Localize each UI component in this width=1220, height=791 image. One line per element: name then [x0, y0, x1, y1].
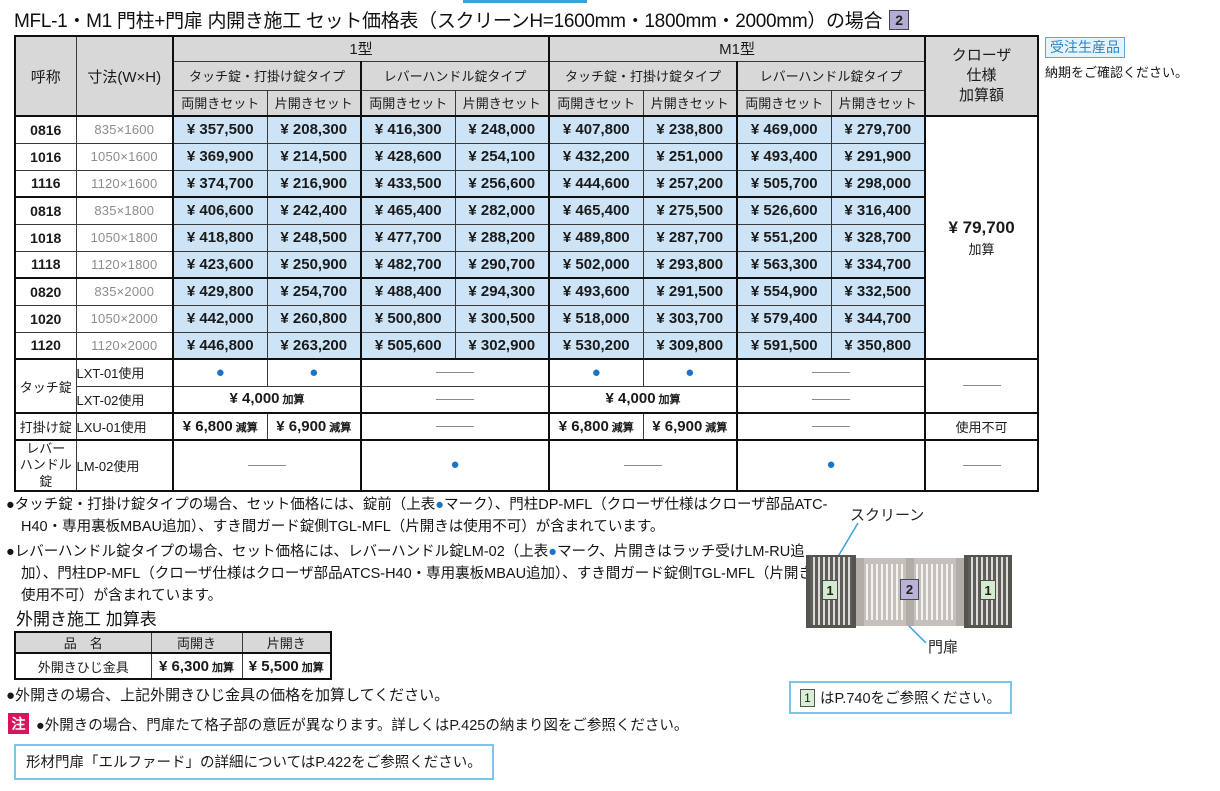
reference-info-box: 形材門扉「エルファード」の詳細についてはP.422をご参照ください。 [14, 744, 494, 780]
screen-label: スクリーン [850, 504, 924, 525]
not-applicable-cell [549, 440, 737, 491]
discount-suffix: 減算 [612, 422, 634, 434]
price-cell: ¥ 505,700 [737, 170, 831, 197]
price-cell: ¥ 288,200 [455, 224, 549, 251]
price-cell: ¥ 418,800 [173, 224, 267, 251]
gate-door-panel [866, 564, 904, 620]
surcharge-price: ¥ 6,300 [159, 658, 209, 675]
price-cell: ¥ 369,900 [173, 143, 267, 170]
size-cell: 1120×2000 [76, 332, 173, 359]
outward-data-row: 外開きひじ金具 ¥ 6,300加算 ¥ 5,500加算 [15, 653, 331, 679]
na-dash [436, 426, 474, 427]
price-cell: ¥ 551,200 [737, 224, 831, 251]
outward-table-title: 外開き施工 加算表 [16, 605, 157, 630]
price-cell: ¥ 465,400 [361, 197, 455, 224]
price-cell: ¥ 250,900 [267, 251, 361, 278]
not-applicable-cell [737, 386, 925, 413]
note-bullet: ● [36, 718, 45, 734]
price-cell: ¥ 256,600 [455, 170, 549, 197]
price-cell: ¥ 214,500 [267, 143, 361, 170]
price-cell: ¥ 469,000 [737, 116, 831, 143]
size-cell: 1050×1800 [76, 224, 173, 251]
discount-cell: ¥ 6,800減算 [549, 413, 643, 440]
price-cell: ¥ 350,800 [831, 332, 925, 359]
price-cell: ¥ 238,800 [643, 116, 737, 143]
lock-category-lever: レバー ハンドル錠 [15, 440, 76, 491]
na-dash [812, 372, 850, 373]
ref-number-badge: 1 [800, 689, 815, 707]
table-row: 1016 1050×1600 ¥ 369,900 ¥ 214,500 ¥ 428… [15, 143, 1038, 170]
size-cell: 1120×1600 [76, 170, 173, 197]
model-cell: 1120 [15, 332, 76, 359]
price-cell: ¥ 406,600 [173, 197, 267, 224]
price-cell: ¥ 477,700 [361, 224, 455, 251]
footnotes: ●タッチ錠・打掛け錠タイプの場合、セット価格には、錠前（上表●マーク）、門柱DP… [6, 494, 828, 610]
price-cell: ¥ 290,700 [455, 251, 549, 278]
price-cell: ¥ 208,300 [267, 116, 361, 143]
price-cell: ¥ 433,500 [361, 170, 455, 197]
note-bullet: ● [6, 687, 15, 704]
applicable-dot: ● [216, 364, 225, 381]
col-header-product: 品 名 [15, 632, 151, 653]
outward-surcharge-table: 品 名 両開き 片開き 外開きひじ金具 ¥ 6,300加算 ¥ 5,500加算 [14, 631, 332, 680]
col-header-double: 両開きセット [361, 90, 455, 116]
table-row: 1118 1120×1800 ¥ 423,600 ¥ 250,900 ¥ 482… [15, 251, 1038, 278]
price-cell: ¥ 300,500 [455, 305, 549, 332]
surcharge-suffix: 加算 [659, 394, 681, 406]
surcharge-cell: ¥ 4,000加算 [173, 386, 361, 413]
price-table: 呼称 寸法(W×H) 1型 M1型 クローザ 仕様 加算額 タッチ錠・打掛け錠タ… [14, 35, 1039, 492]
note-segment: 外開きの場合、門扉たて格子部の意匠が異なります。詳しくはP.425の納まり図をご… [45, 718, 689, 734]
price-cell: ¥ 357,500 [173, 116, 267, 143]
col-header-touch-m1: タッチ錠・打掛け錠タイプ [549, 61, 737, 90]
note-lever: ●レバーハンドル錠タイプの場合、セット価格には、レバーハンドル錠LM-02（上表… [6, 541, 828, 607]
na-dash [812, 399, 850, 400]
price-cell: ¥ 446,800 [173, 332, 267, 359]
size-cell: 835×1800 [76, 197, 173, 224]
lock-row-lxt01: タッチ錠 LXT-01使用 ● ● ● ● [15, 359, 1038, 386]
price-cell: ¥ 429,800 [173, 278, 267, 305]
lock-label: LXU-01使用 [76, 413, 173, 440]
table-row: 0820 835×2000 ¥ 429,800 ¥ 254,700 ¥ 488,… [15, 278, 1038, 305]
surcharge-price: ¥ 4,000 [229, 390, 279, 407]
table-row: 1020 1050×2000 ¥ 442,000 ¥ 260,800 ¥ 500… [15, 305, 1038, 332]
discount-suffix: 減算 [705, 422, 727, 434]
col-header-closer: クローザ 仕様 加算額 [925, 36, 1038, 116]
closer-price: ¥ 79,700 [926, 218, 1037, 238]
applicable-dot: ● [685, 364, 694, 381]
outward-note: ●外開きの場合、上記外開きひじ金具の価格を加算してください。 [6, 684, 449, 705]
gate-number-badge: 2 [900, 579, 919, 600]
screen-number-badge: 1 [822, 580, 838, 600]
price-cell: ¥ 316,400 [831, 197, 925, 224]
closer-surcharge-cell: ¥ 79,700 加算 [925, 116, 1038, 359]
col-header-double: 両開きセット [549, 90, 643, 116]
lock-row-lxu01: 打掛け錠 LXU-01使用 ¥ 6,800減算 ¥ 6,900減算 ¥ 6,80… [15, 413, 1038, 440]
discount-price: ¥ 6,800 [559, 418, 609, 435]
price-cell: ¥ 432,200 [549, 143, 643, 170]
model-cell: 0818 [15, 197, 76, 224]
applicable-cell: ● [173, 359, 267, 386]
model-cell: 1020 [15, 305, 76, 332]
note-segment: レバーハンドル錠タイプの場合、セット価格には、レバーハンドル錠LM-02（上表 [15, 544, 549, 560]
price-cell: ¥ 526,600 [737, 197, 831, 224]
price-cell: ¥ 444,600 [549, 170, 643, 197]
na-dash [436, 399, 474, 400]
caution-text: ●外開きの場合、門扉たて格子部の意匠が異なります。詳しくはP.425の納まり図を… [36, 713, 688, 735]
price-cell: ¥ 332,500 [831, 278, 925, 305]
header-row-groups: 呼称 寸法(W×H) 1型 M1型 クローザ 仕様 加算額 [15, 36, 1038, 61]
gate-post [856, 558, 864, 626]
note-bullet: ● [6, 497, 15, 513]
applicable-dot: ● [450, 456, 459, 473]
na-dash [812, 426, 850, 427]
note-bullet: ● [6, 544, 15, 560]
col-header-single: 片開きセット [643, 90, 737, 116]
price-cell: ¥ 563,300 [737, 251, 831, 278]
price-cell: ¥ 303,700 [643, 305, 737, 332]
closer-suffix: 加算 [926, 239, 1037, 258]
price-cell: ¥ 242,400 [267, 197, 361, 224]
title-number-badge: 2 [889, 10, 909, 30]
applicable-dot: ● [592, 364, 601, 381]
page-reference-box: 1 はP.740をご参照ください。 [789, 681, 1012, 714]
col-header-double: 両開きセット [173, 90, 267, 116]
col-group-typeM1: M1型 [549, 36, 925, 61]
price-cell: ¥ 482,700 [361, 251, 455, 278]
screen-number-badge: 1 [980, 580, 996, 600]
price-cell: ¥ 530,200 [549, 332, 643, 359]
size-cell: 835×2000 [76, 278, 173, 305]
product-cell: 外開きひじ金具 [15, 653, 151, 679]
model-cell: 1018 [15, 224, 76, 251]
not-applicable-cell [925, 359, 1038, 413]
table-row: 0818 835×1800 ¥ 406,600 ¥ 242,400 ¥ 465,… [15, 197, 1038, 224]
price-cell: ¥ 554,900 [737, 278, 831, 305]
price-cell: ¥ 344,700 [831, 305, 925, 332]
price-cell: ¥ 442,000 [173, 305, 267, 332]
not-applicable-cell [737, 359, 925, 386]
lock-label: LXT-01使用 [76, 359, 173, 386]
price-cell: ¥ 423,600 [173, 251, 267, 278]
price-cell: ¥ 248,500 [267, 224, 361, 251]
applicable-cell: ● [267, 359, 361, 386]
price-cell: ¥ 493,600 [549, 278, 643, 305]
surcharge-cell: ¥ 4,000加算 [549, 386, 737, 413]
outward-header-row: 品 名 両開き 片開き [15, 632, 331, 653]
not-applicable-cell [361, 413, 549, 440]
size-cell: 835×1600 [76, 116, 173, 143]
price-cell: ¥ 293,800 [643, 251, 737, 278]
table-row: 1018 1050×1800 ¥ 418,800 ¥ 248,500 ¥ 477… [15, 224, 1038, 251]
model-cell: 1116 [15, 170, 76, 197]
not-applicable-cell [925, 440, 1038, 491]
price-cell: ¥ 488,400 [361, 278, 455, 305]
discount-price: ¥ 6,800 [183, 418, 233, 435]
price-cell: ¥ 374,700 [173, 170, 267, 197]
model-cell: 0820 [15, 278, 76, 305]
na-dash [624, 465, 662, 466]
production-note: 受注生産品 納期をご確認ください。 [1045, 37, 1188, 81]
model-cell: 1118 [15, 251, 76, 278]
discount-price: ¥ 6,900 [652, 418, 702, 435]
not-applicable-cell [361, 359, 549, 386]
price-cell: ¥ 248,000 [455, 116, 549, 143]
caution-row: 注 ●外開きの場合、門扉たて格子部の意匠が異なります。詳しくはP.425の納まり… [8, 713, 688, 735]
col-header-single: 片開きセット [831, 90, 925, 116]
model-cell: 1016 [15, 143, 76, 170]
price-cell: ¥ 302,900 [455, 332, 549, 359]
price-cell: ¥ 251,000 [643, 143, 737, 170]
page-title-row: MFL-1・M1 門柱+門扉 内開き施工 セット価格表（スクリーンH=1600m… [14, 6, 909, 33]
note-segment: 外開きの場合、上記外開きひじ金具の価格を加算してください。 [15, 687, 449, 704]
surcharge-suffix: 加算 [212, 662, 234, 674]
page-accent-line [463, 0, 587, 3]
applicable-cell: ● [643, 359, 737, 386]
note-touch-latch: ●タッチ錠・打掛け錠タイプの場合、セット価格には、錠前（上表●マーク）、門柱DP… [6, 494, 828, 538]
lock-label: LXT-02使用 [76, 386, 173, 413]
price-cell: ¥ 287,700 [643, 224, 737, 251]
note-segment: タッチ錠・打掛け錠タイプの場合、セット価格には、錠前（上表 [15, 497, 436, 513]
gate-label: 門扉 [928, 636, 958, 657]
price-cell: ¥ 518,000 [549, 305, 643, 332]
col-header-name: 呼称 [15, 36, 76, 116]
na-dash [963, 385, 1001, 386]
price-cell: ¥ 216,900 [267, 170, 361, 197]
price-cell: ¥ 260,800 [267, 305, 361, 332]
col-header-single: 片開き [242, 632, 331, 653]
col-header-size: 寸法(W×H) [76, 36, 173, 116]
applicable-cell: ● [361, 440, 549, 491]
price-cell: ¥ 298,000 [831, 170, 925, 197]
price-cell: ¥ 579,400 [737, 305, 831, 332]
inline-dot-mark: ● [435, 497, 444, 513]
surcharge-price: ¥ 4,000 [606, 390, 656, 407]
price-cell: ¥ 309,800 [643, 332, 737, 359]
price-cell: ¥ 279,700 [831, 116, 925, 143]
price-cell: ¥ 254,100 [455, 143, 549, 170]
price-cell: ¥ 291,500 [643, 278, 737, 305]
lock-row-lm02: レバー ハンドル錠 LM-02使用 ● ● [15, 440, 1038, 491]
table-row: 1116 1120×1600 ¥ 374,700 ¥ 216,900 ¥ 433… [15, 170, 1038, 197]
price-cell: ¥ 416,300 [361, 116, 455, 143]
surcharge-cell: ¥ 5,500加算 [242, 653, 331, 679]
price-cell: ¥ 407,800 [549, 116, 643, 143]
price-cell: ¥ 257,200 [643, 170, 737, 197]
surcharge-suffix: 加算 [302, 662, 324, 674]
discount-price: ¥ 6,900 [276, 418, 326, 435]
price-cell: ¥ 254,700 [267, 278, 361, 305]
table-row: 1120 1120×2000 ¥ 446,800 ¥ 263,200 ¥ 505… [15, 332, 1038, 359]
price-cell: ¥ 263,200 [267, 332, 361, 359]
size-cell: 1050×2000 [76, 305, 173, 332]
col-header-lever-1: レバーハンドル錠タイプ [361, 61, 549, 90]
discount-cell: ¥ 6,800減算 [173, 413, 267, 440]
na-dash [248, 465, 286, 466]
closer-unusable-cell: 使用不可 [925, 413, 1038, 440]
col-group-type1: 1型 [173, 36, 549, 61]
gate-post [956, 558, 964, 626]
applicable-cell: ● [737, 440, 925, 491]
applicable-cell: ● [549, 359, 643, 386]
price-cell: ¥ 505,600 [361, 332, 455, 359]
ref-text: はP.740をご参照ください。 [820, 687, 1001, 708]
price-cell: ¥ 591,500 [737, 332, 831, 359]
price-cell: ¥ 282,000 [455, 197, 549, 224]
surcharge-suffix: 加算 [283, 394, 305, 406]
price-cell: ¥ 465,400 [549, 197, 643, 224]
not-applicable-cell [737, 413, 925, 440]
not-applicable-cell [173, 440, 361, 491]
na-dash [436, 372, 474, 373]
col-header-double: 両開き [151, 632, 242, 653]
lock-label: LM-02使用 [76, 440, 173, 491]
price-cell: ¥ 275,500 [643, 197, 737, 224]
discount-cell: ¥ 6,900減算 [267, 413, 361, 440]
col-header-single: 片開きセット [267, 90, 361, 116]
gate-diagram: スクリーン 1 2 1 門扉 [788, 503, 1032, 678]
col-header-touch-1: タッチ錠・打掛け錠タイプ [173, 61, 361, 90]
price-cell: ¥ 328,700 [831, 224, 925, 251]
price-cell: ¥ 334,700 [831, 251, 925, 278]
price-cell: ¥ 489,800 [549, 224, 643, 251]
price-cell: ¥ 291,900 [831, 143, 925, 170]
inline-dot-mark: ● [548, 544, 557, 560]
surcharge-price: ¥ 5,500 [249, 658, 299, 675]
col-header-double: 両開きセット [737, 90, 831, 116]
delivery-note: 納期をご確認ください。 [1045, 62, 1188, 81]
not-applicable-cell [361, 386, 549, 413]
price-cell: ¥ 502,000 [549, 251, 643, 278]
page-title: MFL-1・M1 門柱+門扉 内開き施工 セット価格表（スクリーンH=1600m… [14, 6, 882, 33]
made-to-order-badge: 受注生産品 [1045, 37, 1125, 58]
price-cell: ¥ 428,600 [361, 143, 455, 170]
discount-suffix: 減算 [329, 422, 351, 434]
na-dash [963, 465, 1001, 466]
price-cell: ¥ 493,400 [737, 143, 831, 170]
lock-category-latch: 打掛け錠 [15, 413, 76, 440]
size-cell: 1120×1800 [76, 251, 173, 278]
table-row: 0816 835×1600 ¥ 357,500 ¥ 208,300 ¥ 416,… [15, 116, 1038, 143]
applicable-dot: ● [309, 364, 318, 381]
model-cell: 0816 [15, 116, 76, 143]
caution-badge: 注 [8, 713, 29, 734]
col-header-lever-m1: レバーハンドル錠タイプ [737, 61, 925, 90]
price-cell: ¥ 500,800 [361, 305, 455, 332]
col-header-single: 片開きセット [455, 90, 549, 116]
lock-row-lxt02: LXT-02使用 ¥ 4,000加算 ¥ 4,000加算 [15, 386, 1038, 413]
surcharge-cell: ¥ 6,300加算 [151, 653, 242, 679]
lock-category-touch: タッチ錠 [15, 359, 76, 413]
applicable-dot: ● [827, 456, 836, 473]
price-cell: ¥ 294,300 [455, 278, 549, 305]
discount-suffix: 減算 [236, 422, 258, 434]
size-cell: 1050×1600 [76, 143, 173, 170]
discount-cell: ¥ 6,900減算 [643, 413, 737, 440]
gate-door-panel [916, 564, 954, 620]
